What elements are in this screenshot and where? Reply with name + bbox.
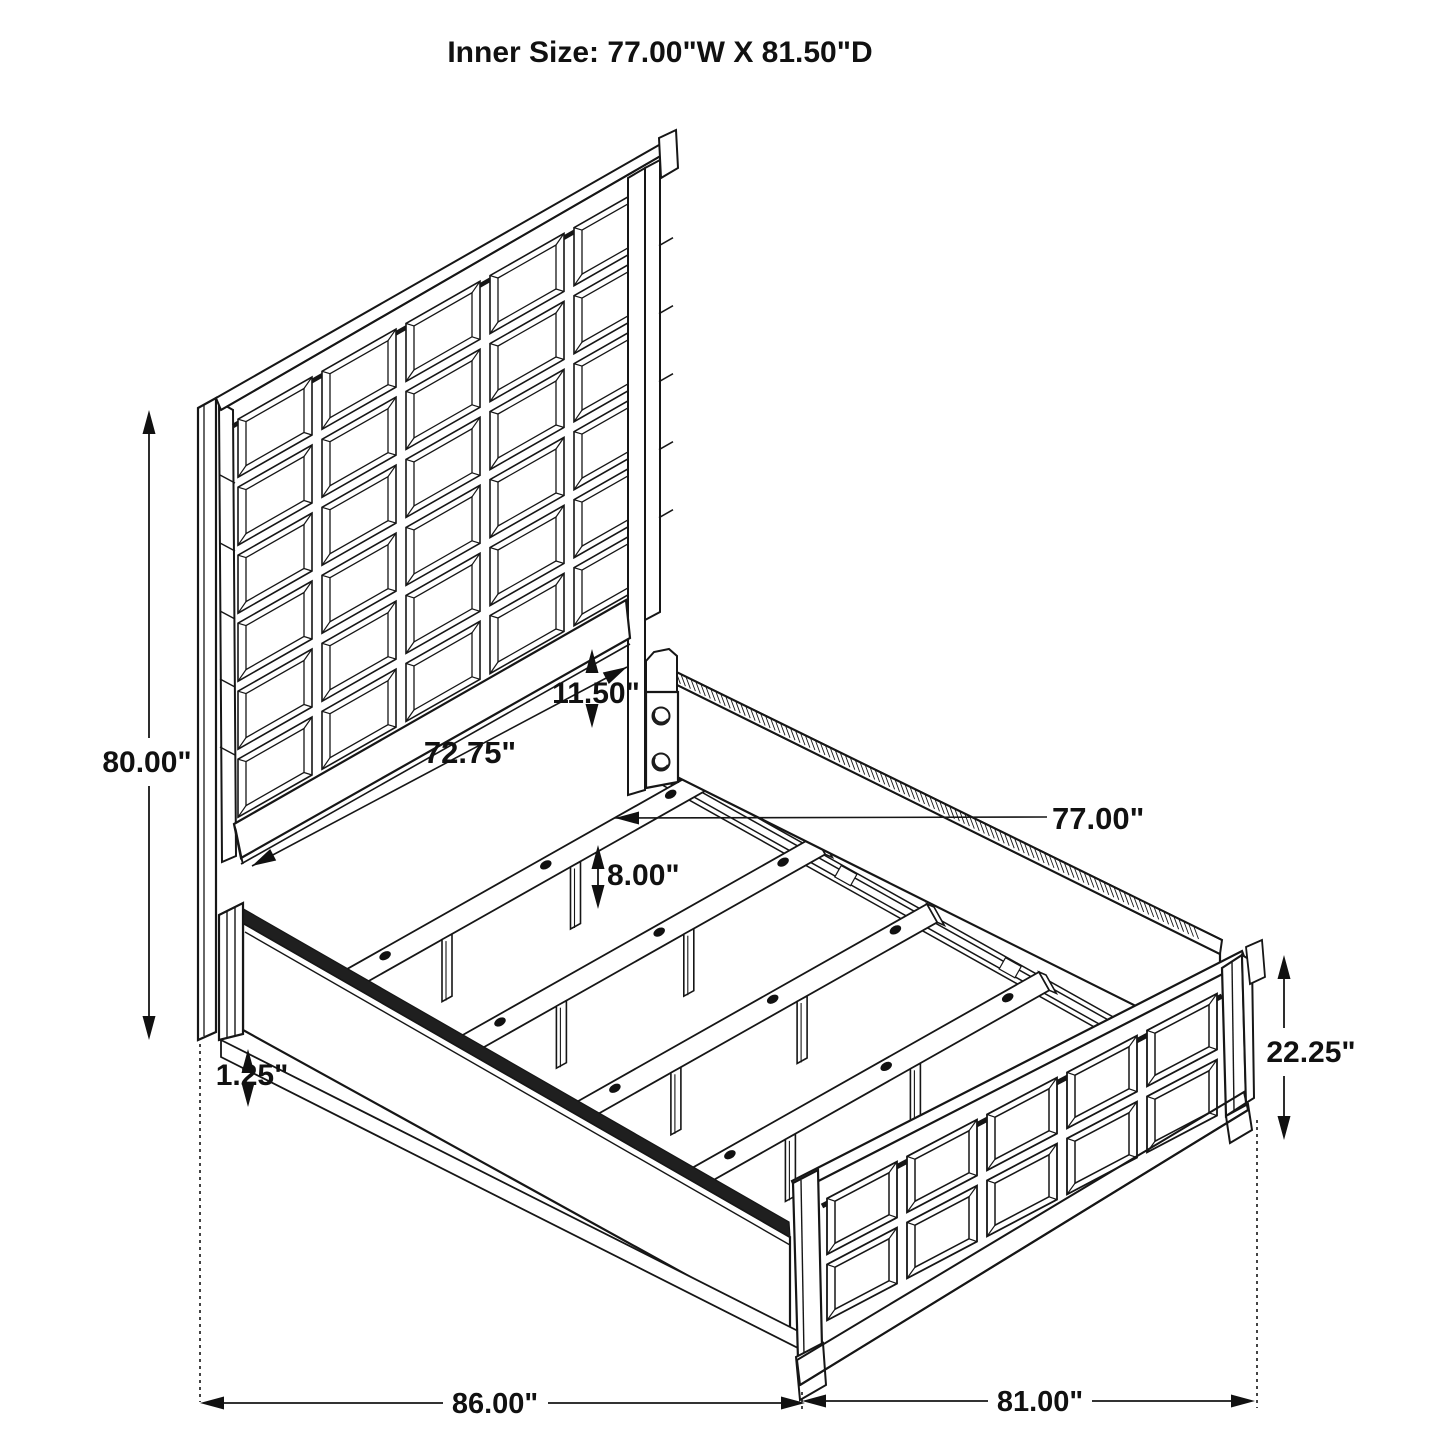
svg-text:11.50": 11.50" <box>552 677 640 710</box>
svg-text:77.00": 77.00" <box>1052 801 1144 836</box>
svg-text:81.00": 81.00" <box>997 1386 1083 1418</box>
svg-text:1.25": 1.25" <box>216 1059 289 1092</box>
svg-text:22.25": 22.25" <box>1266 1036 1355 1069</box>
svg-text:72.75": 72.75" <box>424 735 516 770</box>
svg-text:80.00": 80.00" <box>102 746 191 779</box>
svg-text:Inner Size: 77.00"W X 81.50"D: Inner Size: 77.00"W X 81.50"D <box>447 36 872 69</box>
svg-text:8.00": 8.00" <box>607 859 680 892</box>
svg-text:86.00": 86.00" <box>452 1388 538 1420</box>
